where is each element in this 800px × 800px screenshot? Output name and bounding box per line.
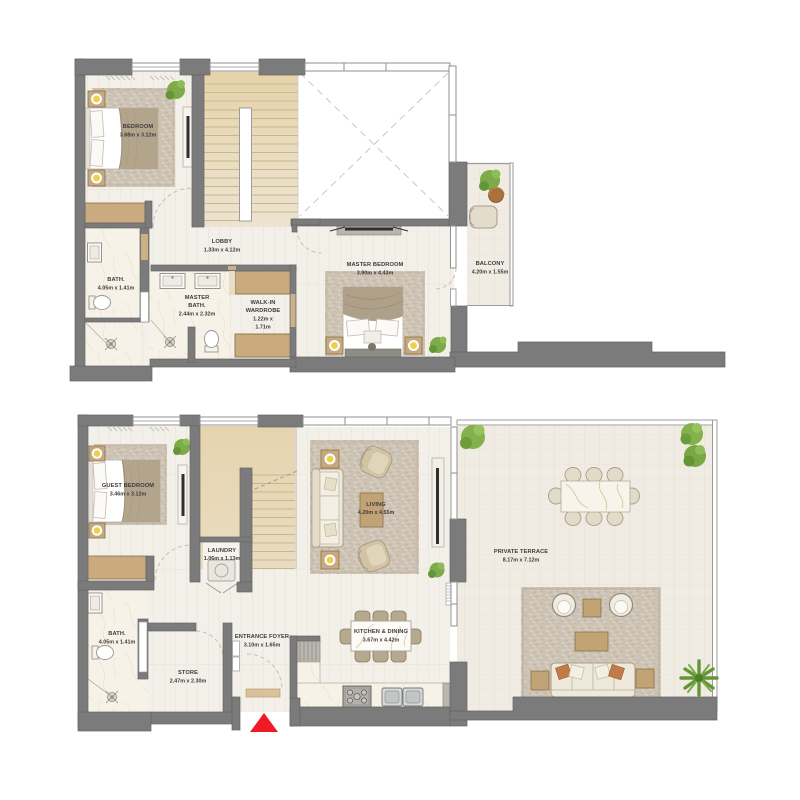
svg-text:BATH.: BATH. [188, 303, 206, 309]
svg-text:1.22m x: 1.22m x [253, 317, 273, 323]
svg-text:BATH.: BATH. [107, 277, 125, 283]
svg-text:3.67m x 4.42m: 3.67m x 4.42m [363, 638, 400, 644]
svg-text:BATH.: BATH. [108, 631, 126, 637]
svg-text:BALCONY: BALCONY [476, 261, 505, 267]
svg-text:4.05m x 1.41m: 4.05m x 1.41m [99, 640, 136, 646]
svg-text:3.46m x 3.12m: 3.46m x 3.12m [110, 492, 147, 498]
svg-text:3.90m x 4.43m: 3.90m x 4.43m [357, 271, 394, 277]
svg-text:8.17m x 7.12m: 8.17m x 7.12m [503, 558, 540, 564]
svg-text:PRIVATE TERRACE: PRIVATE TERRACE [494, 549, 548, 555]
svg-text:4.20m x 4.55m: 4.20m x 4.55m [358, 510, 395, 516]
svg-text:LAUNDRY: LAUNDRY [208, 548, 236, 554]
svg-text:3.10m x 1.65m: 3.10m x 1.65m [244, 643, 281, 649]
svg-text:4.20m x 1.55m: 4.20m x 1.55m [472, 270, 509, 276]
svg-text:2.44m x 2.32m: 2.44m x 2.32m [179, 312, 216, 318]
svg-text:BEDROOM: BEDROOM [123, 124, 154, 130]
svg-text:1.06m x 1.13m: 1.06m x 1.13m [204, 556, 241, 562]
svg-text:1.71m: 1.71m [255, 325, 270, 331]
svg-text:LOBBY: LOBBY [212, 239, 233, 245]
svg-text:KITCHEN & DINING: KITCHEN & DINING [354, 629, 409, 635]
svg-text:STORE: STORE [178, 670, 198, 676]
svg-text:WARDROBE: WARDROBE [246, 308, 281, 314]
svg-text:LIVING: LIVING [366, 502, 386, 508]
svg-text:3.68m x 3.12m: 3.68m x 3.12m [120, 133, 157, 139]
svg-text:WALK-IN: WALK-IN [250, 300, 275, 306]
svg-text:1.33m x 4.12m: 1.33m x 4.12m [204, 248, 241, 254]
svg-text:MASTER: MASTER [185, 295, 210, 301]
svg-text:2.47m x 2.30m: 2.47m x 2.30m [170, 679, 207, 685]
svg-text:ENTRANCE FOYER: ENTRANCE FOYER [235, 634, 289, 640]
svg-text:MASTER BEDROOM: MASTER BEDROOM [347, 262, 404, 268]
svg-text:GUEST BEDROOM: GUEST BEDROOM [102, 483, 154, 489]
svg-text:4.05m x 1.41m: 4.05m x 1.41m [98, 286, 135, 292]
